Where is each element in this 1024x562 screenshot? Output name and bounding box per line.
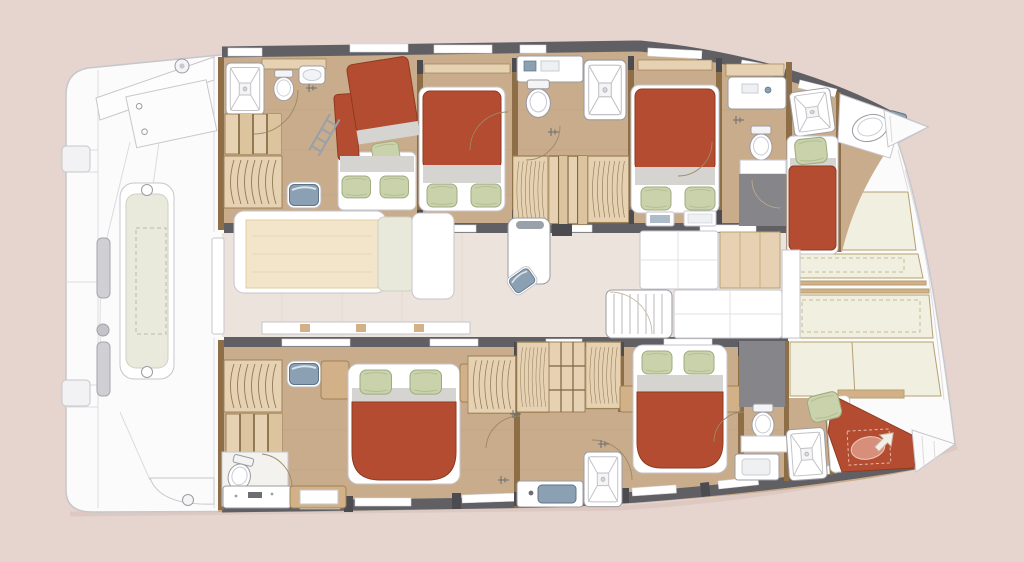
double-bed xyxy=(637,392,723,468)
faucet xyxy=(765,87,771,93)
pillow xyxy=(360,370,392,394)
shower xyxy=(584,452,622,507)
cockpit-bench xyxy=(120,183,174,379)
shelf xyxy=(726,64,784,76)
stairs xyxy=(225,114,281,154)
pillow xyxy=(380,176,409,198)
ledge xyxy=(740,160,786,174)
fridge-column xyxy=(782,250,800,338)
winch-fitting xyxy=(175,59,189,73)
davit-joint xyxy=(97,324,109,336)
double-bed xyxy=(352,402,456,480)
sheet-fold xyxy=(340,156,414,172)
aft-sill xyxy=(262,322,470,334)
companionway-stairs xyxy=(606,290,672,338)
catamaran-floor-plan xyxy=(0,0,1024,562)
pillow xyxy=(427,184,457,207)
galley-cabinet xyxy=(720,232,780,288)
basin xyxy=(742,459,770,475)
basin xyxy=(541,61,559,71)
shower xyxy=(226,63,264,115)
island-handle xyxy=(516,221,544,229)
wet-floor xyxy=(739,174,786,226)
toilet xyxy=(752,404,774,438)
faucet xyxy=(529,491,534,496)
pillow xyxy=(685,187,715,210)
double-bed xyxy=(423,91,501,169)
shower xyxy=(789,87,836,136)
counter-inset xyxy=(300,490,338,504)
toilet xyxy=(526,80,550,117)
sheet-fold xyxy=(423,165,501,183)
shelf xyxy=(424,64,510,73)
wardrobe xyxy=(224,156,282,208)
crossbeam-rail xyxy=(790,289,929,293)
double-bed xyxy=(635,89,715,171)
basin xyxy=(742,84,758,93)
pillow xyxy=(794,137,828,165)
pillow xyxy=(410,370,442,394)
sheet-fold xyxy=(635,167,715,185)
wardrobe xyxy=(517,342,549,412)
pillow xyxy=(684,351,714,374)
pillow xyxy=(471,184,501,207)
wardrobe xyxy=(224,360,282,412)
foredeck-locker xyxy=(790,342,941,396)
wardrobe xyxy=(468,356,516,413)
stairs xyxy=(549,156,587,224)
floor-plan-stage xyxy=(0,0,1024,562)
sheet-fold xyxy=(637,375,723,393)
sliding-door xyxy=(212,238,224,334)
sink xyxy=(538,485,576,503)
swim-step-upper xyxy=(62,146,90,172)
faucet xyxy=(524,61,536,71)
ledge xyxy=(741,436,787,452)
deck-fitting xyxy=(183,495,194,506)
swim-step-lower xyxy=(62,380,90,406)
sofa-seat xyxy=(378,217,414,291)
washbasin xyxy=(299,66,325,84)
pillow xyxy=(641,187,671,210)
cabinet xyxy=(321,361,349,399)
shelves xyxy=(549,342,585,412)
toilet xyxy=(750,126,772,160)
wardrobe xyxy=(513,156,548,224)
dining-area xyxy=(234,211,454,299)
wet-floor xyxy=(739,341,785,407)
wall-stub xyxy=(552,224,572,236)
lower-fwd-cabin xyxy=(620,345,740,473)
davit-arm-upper xyxy=(97,238,110,298)
vanity-sink xyxy=(287,182,321,208)
davit-arm-lower xyxy=(97,342,110,396)
foredeck-panel xyxy=(790,295,933,338)
chaise xyxy=(412,213,454,299)
crossbeam-rail xyxy=(790,281,926,285)
wardrobe xyxy=(586,342,621,409)
shower xyxy=(786,427,827,480)
vanity-sink xyxy=(287,361,321,387)
pillow xyxy=(642,351,672,374)
faucet xyxy=(248,492,262,498)
pillow xyxy=(342,176,371,198)
shelf xyxy=(638,60,712,70)
wardrobe xyxy=(588,156,629,223)
single-berth xyxy=(789,166,836,250)
toilet xyxy=(274,70,294,101)
shower xyxy=(584,60,626,120)
stairs xyxy=(226,414,282,454)
